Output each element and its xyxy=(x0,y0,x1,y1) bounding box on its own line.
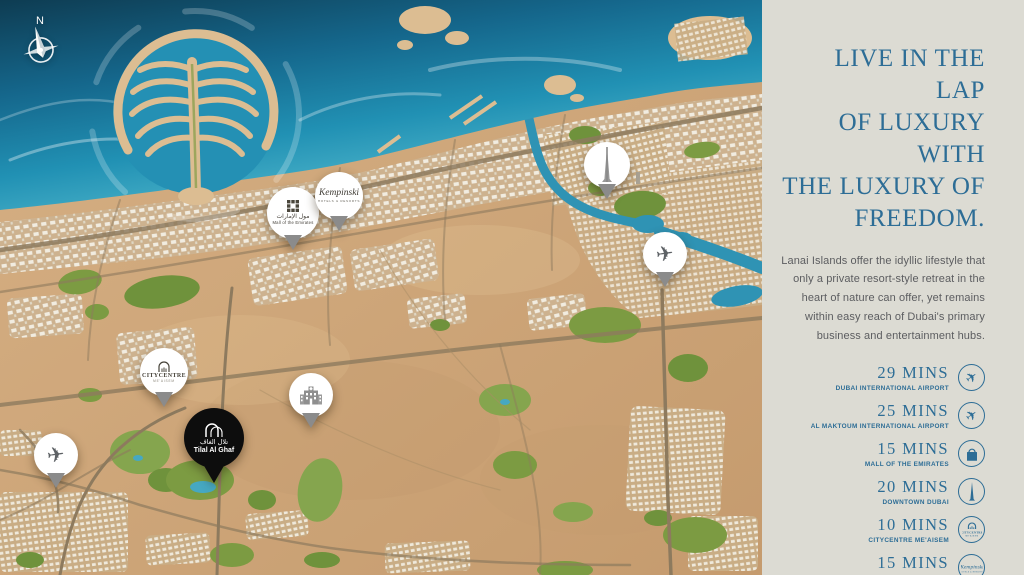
citycentre-logo-subtext: ME'AISEM xyxy=(153,380,175,383)
headline-line: LIVE IN THE LAP xyxy=(780,43,985,107)
map-pin-mall-of-the-emirates[interactable]: مول الإمارات Mall of the Emirates xyxy=(267,187,319,250)
pin-tail xyxy=(203,464,225,483)
map-area: N مول الإمارات Mall of the Emirates xyxy=(0,0,762,575)
destination-label: DOWNTOWN DUBAI xyxy=(877,499,949,506)
destination-label: DUBAI INTERNATIONAL AIRPORT xyxy=(836,385,949,392)
moe-logo-icon xyxy=(287,200,299,212)
destination-row-kempinski-hotel: 15 MINS KEMPINSKI HOTEL Kempinski HOTELS… xyxy=(780,553,985,575)
kempinski-logo-subtext: HOTELS & RESORTS xyxy=(318,200,360,203)
airplane-icon: ✈ xyxy=(655,242,675,265)
destination-list: 29 MINS DUBAI INTERNATIONAL AIRPORT ✈ 25… xyxy=(780,363,985,575)
map-pin-dubai-international-airport[interactable]: ✈ xyxy=(643,232,687,287)
pin-tail xyxy=(656,272,674,287)
headline-line: OF LUXURY WITH xyxy=(780,107,985,171)
page: N مول الإمارات Mall of the Emirates xyxy=(0,0,1024,575)
svg-text:Kempinski: Kempinski xyxy=(961,564,983,570)
svg-text:HOTELS & RESORTS: HOTELS & RESORTS xyxy=(961,571,983,573)
map-pin-al-maktoum-international-airport[interactable]: ✈ xyxy=(34,433,78,488)
travel-time: 15 MINS xyxy=(865,439,949,459)
destination-row-al-maktoum-international-airport: 25 MINS AL MAKTOUM INTERNATIONAL AIRPORT… xyxy=(780,401,985,430)
destination-row-mall-of-the-emirates: 15 MINS MALL OF THE EMIRATES xyxy=(780,439,985,468)
intro-paragraph: Lanai Islands offer the idyllic lifestyl… xyxy=(780,252,985,347)
map-pin-kempinski-hotel[interactable]: Kempinski HOTELS & RESORTS xyxy=(315,172,363,231)
citycentre-arch-icon xyxy=(154,360,174,372)
shopping-bag-icon xyxy=(958,440,985,467)
airplane-icon: ✈ xyxy=(958,364,985,391)
destination-label: CITYCENTRE ME'AISEM xyxy=(868,537,949,544)
hospital-icon xyxy=(299,386,323,405)
airplane-icon: ✈ xyxy=(46,443,66,466)
tilal-arch-logo-icon xyxy=(203,422,225,437)
travel-time: 29 MINS xyxy=(836,363,949,383)
burj-khalifa-icon xyxy=(958,478,985,505)
pin-tail xyxy=(47,473,65,488)
compass-icon: N xyxy=(16,12,68,76)
svg-text:CITYCENTRE: CITYCENTRE xyxy=(962,530,982,534)
svg-text:ME'AISEM: ME'AISEM xyxy=(965,534,978,537)
kempinski-logo-text: Kempinski xyxy=(319,189,359,199)
burj-khalifa-icon xyxy=(595,146,619,184)
kempinski-logo-icon: Kempinski HOTELS & RESORTS xyxy=(958,554,985,575)
tilal-arabic-text: تلال الغاف xyxy=(200,439,228,446)
map-pin-downtown-dubai[interactable] xyxy=(584,142,630,199)
map-pin-tilal-al-ghaf[interactable]: تلال الغاف Tilal Al Ghaf xyxy=(184,408,244,483)
pin-tail xyxy=(330,216,348,231)
tilal-title: Tilal Al Ghaf xyxy=(194,447,234,454)
pin-tail xyxy=(284,235,302,250)
pin-tail xyxy=(302,413,320,428)
map-pin-mediclinic-parkview-hospital[interactable] xyxy=(289,373,333,428)
travel-time: 15 MINS xyxy=(877,553,949,573)
citycentre-logo-icon: CITYCENTRE ME'AISEM xyxy=(958,516,985,543)
info-sidebar: LIVE IN THE LAP OF LUXURY WITH THE LUXUR… xyxy=(762,0,1024,575)
airplane-icon: ✈ xyxy=(958,402,985,429)
headline-line: THE LUXURY OF xyxy=(780,171,985,203)
map-illustration xyxy=(0,0,762,575)
travel-time: 25 MINS xyxy=(811,401,949,421)
moe-title: Mall of the Emirates xyxy=(272,221,313,225)
pin-tail xyxy=(598,184,616,199)
destination-row-downtown-dubai: 20 MINS DOWNTOWN DUBAI xyxy=(780,477,985,506)
map-pin-citycentre-meaisem[interactable]: CITYCENTRE ME'AISEM xyxy=(140,348,188,407)
destination-row-citycentre-meaisem: 10 MINS CITYCENTRE ME'AISEM CITYCENTRE M… xyxy=(780,515,985,544)
destination-label: AL MAKTOUM INTERNATIONAL AIRPORT xyxy=(811,423,949,430)
page-title: LIVE IN THE LAP OF LUXURY WITH THE LUXUR… xyxy=(780,43,985,235)
destination-label: MALL OF THE EMIRATES xyxy=(865,461,949,468)
pin-tail xyxy=(155,392,173,407)
travel-time: 20 MINS xyxy=(877,477,949,497)
destination-row-dubai-international-airport: 29 MINS DUBAI INTERNATIONAL AIRPORT ✈ xyxy=(780,363,985,392)
travel-time: 10 MINS xyxy=(868,515,949,535)
headline-line: FREEDOM. xyxy=(780,203,985,235)
svg-text:N: N xyxy=(36,15,44,27)
